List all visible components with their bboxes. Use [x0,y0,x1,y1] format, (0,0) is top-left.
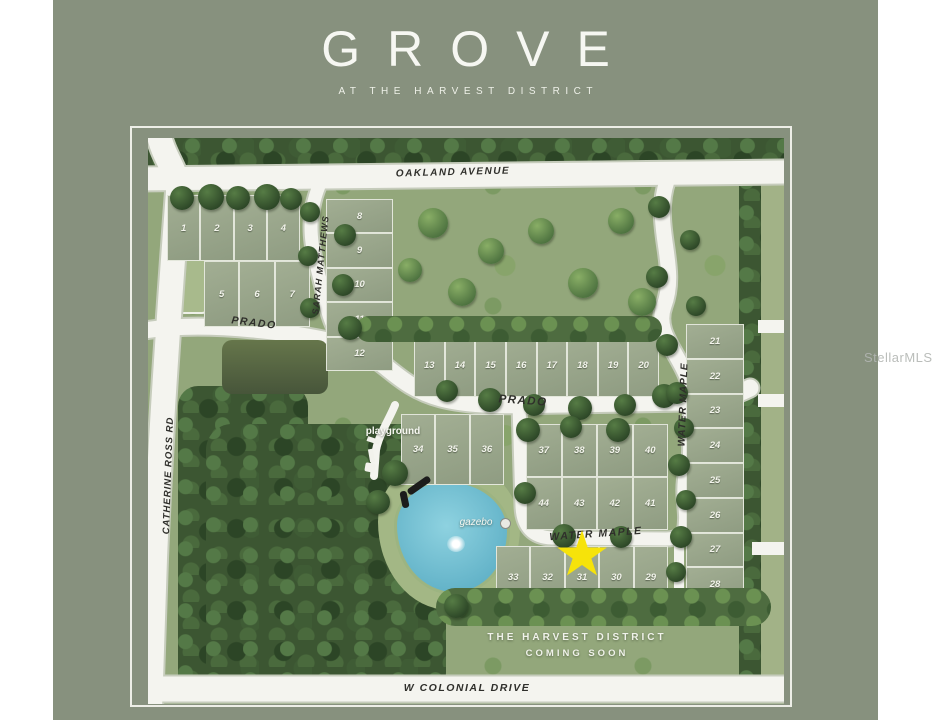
tree [398,258,422,282]
tree [254,184,280,210]
lot-24: 24 [686,428,744,463]
lot-21: 21 [686,324,744,359]
lot-7: 7 [275,261,310,327]
fountain-icon [447,536,465,552]
lot-36: 36 [470,414,504,485]
tree [656,334,678,356]
lot-35: 35 [435,414,469,485]
tree [338,316,362,340]
lot-16: 16 [506,334,537,397]
tree [670,526,692,548]
playground-icon [364,462,375,473]
tree [648,196,670,218]
lot-40: 40 [633,424,669,477]
tree [608,208,634,234]
page-title: GROVE [53,22,878,77]
tree [680,230,700,250]
tree [666,562,686,582]
tree [606,418,630,442]
tree [478,238,504,264]
lot-block-f: 37 38 39 40 44 43 42 41 [526,424,668,530]
page-subtitle: AT THE HARVEST DISTRICT [53,86,878,97]
tree [514,482,536,504]
lot-23: 23 [686,394,744,429]
lot-41: 41 [633,477,669,530]
banner-line1: THE HARVEST DISTRICT [477,632,677,643]
tree-row [356,316,662,342]
tree [334,224,356,246]
lot-25: 25 [686,463,744,498]
site-plan-map: 1 2 3 4 5 6 7 8 9 10 11 12 13 14 15 16 1… [148,138,784,704]
gazebo-label: gazebo [441,517,511,528]
tree [170,186,194,210]
street-label-colonial: W COLONIAL DRIVE [392,682,542,694]
tree [382,460,408,486]
tree [646,266,668,288]
tree [686,296,706,316]
tree-row [436,588,771,626]
tree [280,188,302,210]
tree [568,268,598,298]
tree [366,490,390,514]
page-header: GROVE AT THE HARVEST DISTRICT [53,22,878,97]
tree [448,278,476,306]
lot-43: 43 [562,477,598,530]
tree [332,274,354,296]
lot-42: 42 [597,477,633,530]
tree [676,490,696,510]
watermark: StellarMLS [864,350,932,365]
playground-label: playground [353,426,433,437]
tree [528,218,554,244]
tree [300,202,320,222]
retention-pond [222,340,328,394]
lot-17: 17 [537,334,568,397]
banner-line2: COMING SOON [477,648,677,659]
tree [614,394,636,416]
tree [226,186,250,210]
tree [628,288,656,316]
tree [516,418,540,442]
lot-27: 27 [686,533,744,568]
tree [418,208,448,238]
lot-18: 18 [567,334,598,397]
lot-22: 22 [686,359,744,394]
tree [444,594,468,618]
lot-block-d: 21 22 23 24 25 26 27 28 [686,324,744,602]
tree [198,184,224,210]
lot-19: 19 [598,334,629,397]
tree [436,380,458,402]
tree [560,416,582,438]
lot-block-e: 34 35 36 [401,414,504,485]
